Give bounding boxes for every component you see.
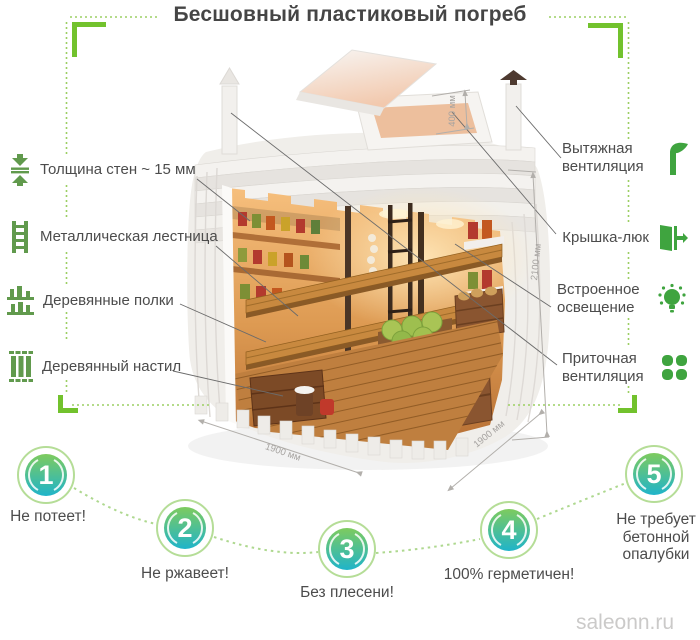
benefit-3-label: Без плесени! [294,584,400,602]
corner-bottom-right [618,395,637,413]
wooden-shelves-icon [7,286,34,315]
corner-top-right [588,23,623,58]
dim-400: 400 мм [447,95,458,127]
benefit-2-label: Не ржавеет! [136,565,234,583]
label-text: Приточная вентиляция [562,350,652,385]
badge-4: 4 [481,502,537,558]
benefit-5-label: Не требует бетонной опалубки [611,511,700,564]
label-text: Деревянный настил [42,358,181,376]
benefit-4-label: 100% герметичен! [428,566,590,584]
badge-1: 1 [18,447,74,503]
watermark: saleonn.ru [576,611,674,635]
badge-2: 2 [157,500,213,556]
svg-text:3: 3 [339,534,354,564]
exhaust-vent-icon [661,141,688,175]
badge-5: 5 [626,446,682,502]
exhaust-vent-pipe [500,70,527,150]
supply-vent-pipe [220,68,239,154]
label-wall-thickness: Толщина стен ~ 15 мм [9,154,196,186]
label-metal-ladder: Металлическая лестница [9,221,218,253]
label-hatch-lid: Крышка-люк [562,224,688,252]
corner-top-left [72,22,106,57]
label-text: Металлическая лестница [40,228,218,246]
page-title: Бесшовный пластиковый погреб [0,3,700,27]
label-wooden-deck: Деревянный настил [9,351,181,382]
svg-text:1: 1 [38,460,53,490]
label-supply-vent: Приточная вентиляция [562,350,688,385]
benefit-1-label: Не потеет! [2,508,94,526]
corner-bottom-left [58,395,78,413]
infographic-page: 400 мм 2100 мм 1900 мм 1900 мм [0,0,700,640]
label-exhaust-vent: Вытяжная вентиляция [562,140,688,175]
label-text: Крышка-люк [562,229,649,247]
wall-thickness-icon [9,154,31,186]
svg-text:4: 4 [501,515,516,545]
label-text: Толщина стен ~ 15 мм [40,161,196,179]
cellar-illustration: 400 мм 2100 мм 1900 мм 1900 мм [0,0,700,640]
supply-vent-icon [661,354,688,381]
label-wooden-shelves: Деревянные полки [7,286,174,315]
label-text: Вытяжная вентиляция [562,140,652,175]
svg-text:2: 2 [177,513,192,543]
svg-text:5: 5 [646,459,661,489]
label-built-in-light: Встроенное освещение [557,281,688,316]
metal-ladder-icon [9,221,31,253]
label-text: Деревянные полки [43,292,174,310]
label-text: Встроенное освещение [557,281,647,316]
built-in-light-icon [656,283,688,315]
wooden-deck-icon [9,351,33,382]
badge-3: 3 [319,521,375,577]
hatch-lid-icon [658,224,688,252]
